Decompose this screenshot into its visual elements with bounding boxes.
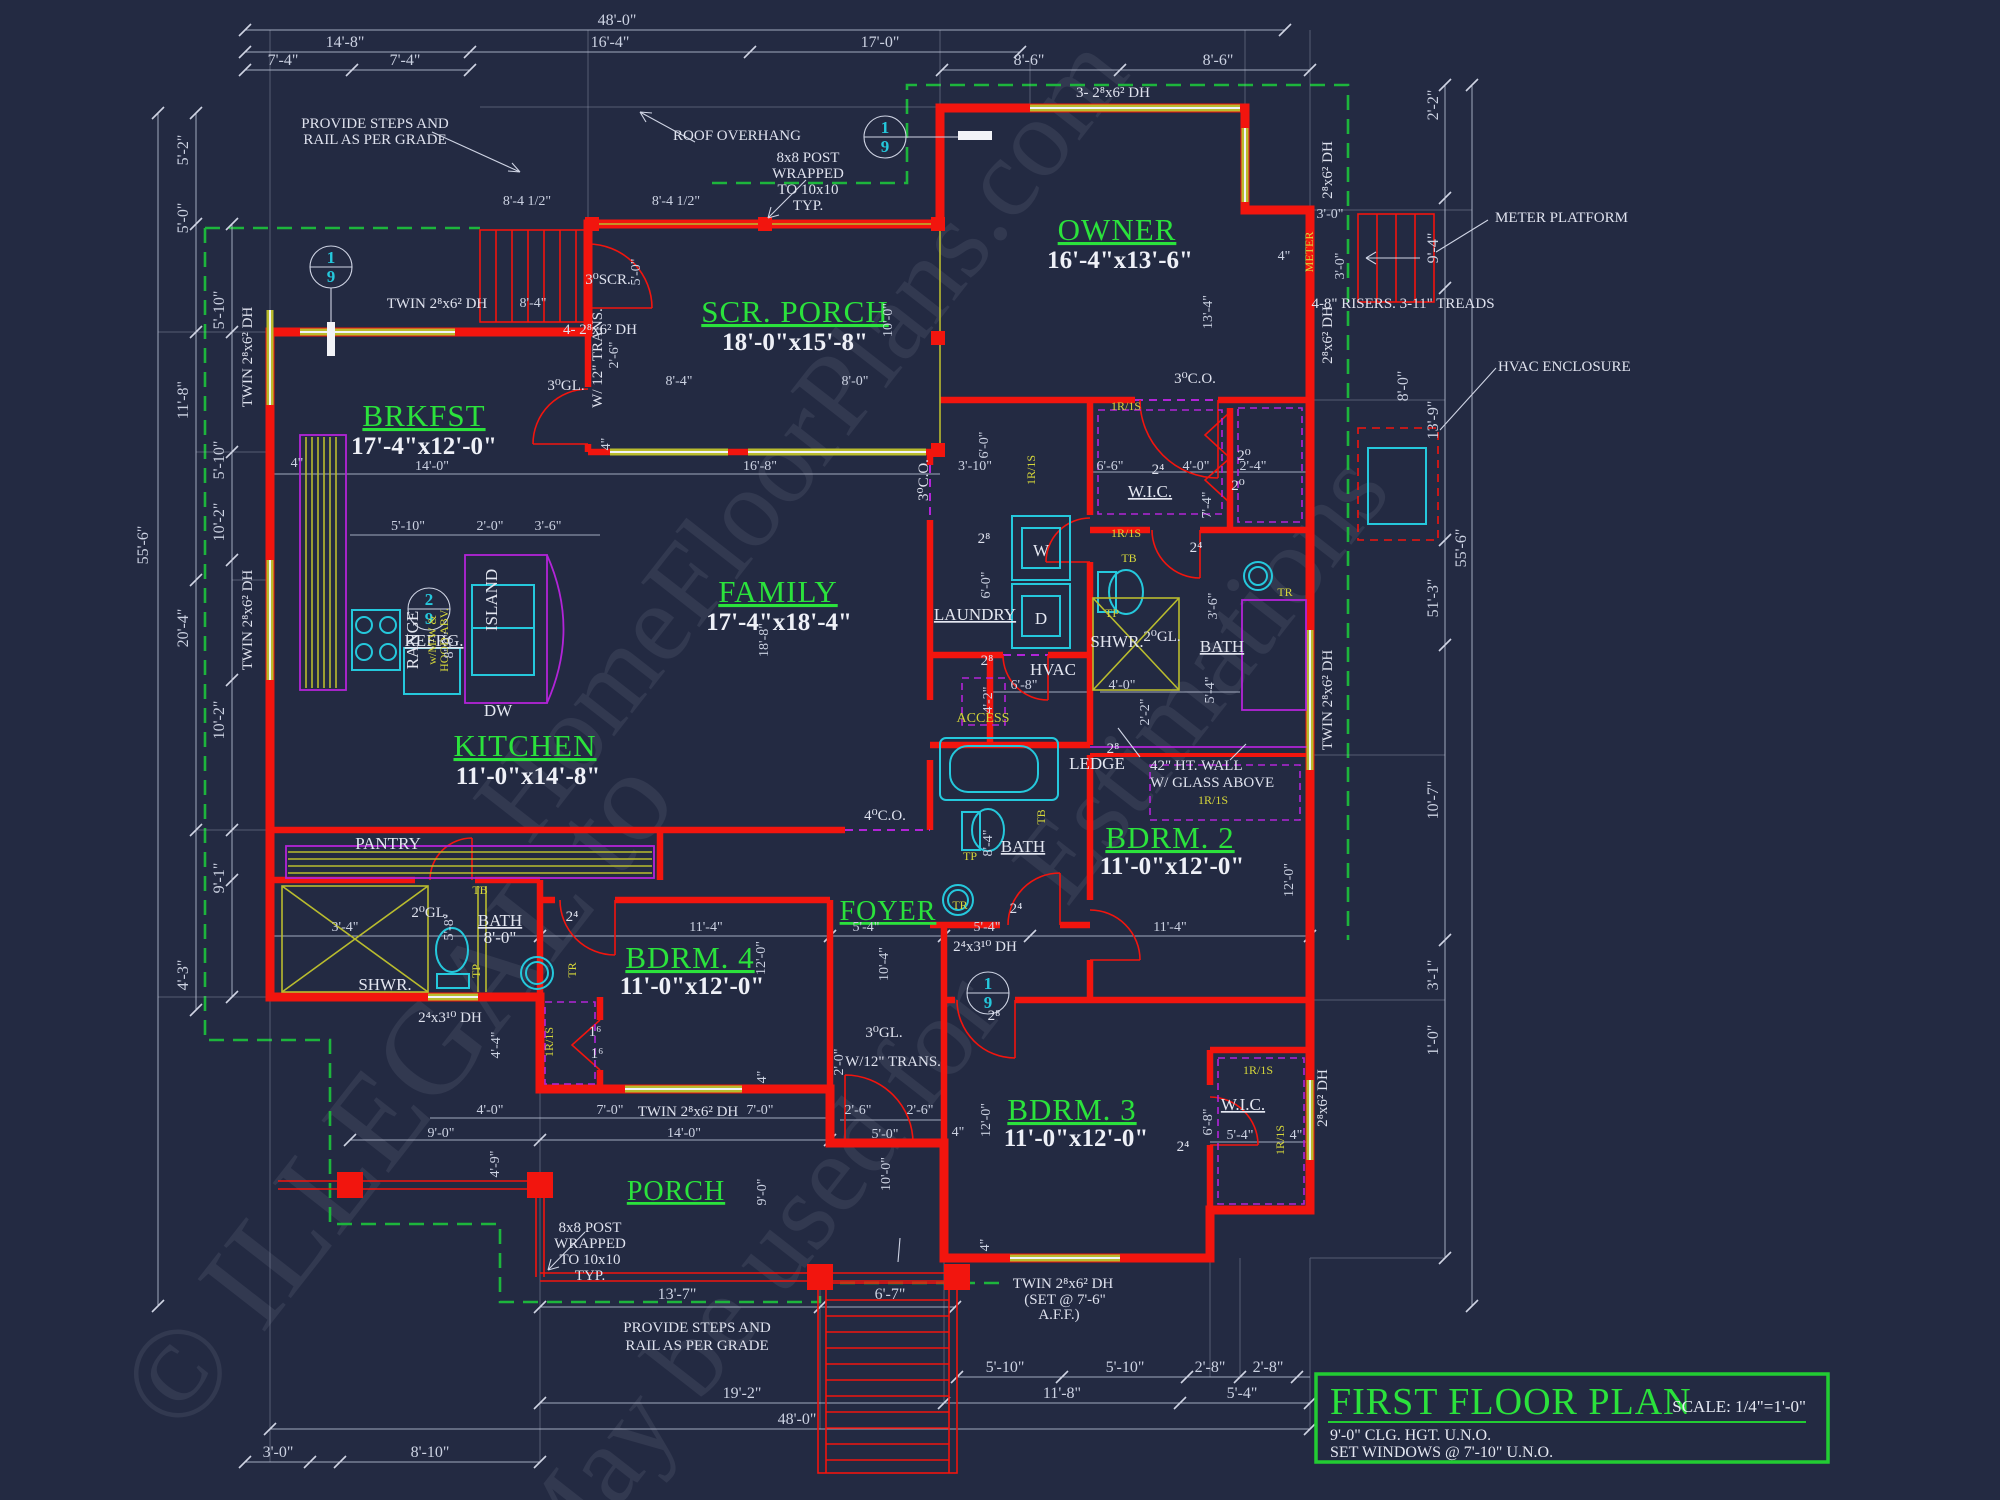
note-hvac-enclosure: HVAC ENCLOSURE bbox=[1498, 359, 1631, 375]
window-label: 2⁴x3¹⁰ DH bbox=[953, 939, 1017, 955]
dim: 1'-0" bbox=[1425, 1025, 1442, 1056]
dim: 14'-0" bbox=[667, 1126, 701, 1141]
dim: 2'-6" bbox=[907, 1103, 934, 1118]
tr-tag: TR bbox=[952, 898, 967, 912]
window-label: TWIN 2⁸x6² DH bbox=[387, 296, 488, 312]
dim: 5'-4" bbox=[1227, 1128, 1254, 1143]
dim: 8'-10" bbox=[411, 1444, 450, 1461]
room-size-bdrm4: 11'-0"x12'-0" bbox=[620, 973, 764, 1000]
dim: 8'-0" bbox=[1395, 371, 1412, 402]
dim: 13'-4" bbox=[1201, 295, 1216, 329]
note-meter-platform: METER PLATFORM bbox=[1495, 210, 1628, 226]
note-glass-wall: W/ GLASS ABOVE bbox=[1150, 775, 1274, 791]
dim: 10'-2" bbox=[211, 701, 228, 740]
dim: 5'-8" bbox=[442, 914, 457, 941]
label-bath: BATH bbox=[1200, 637, 1244, 656]
dim: 5'-10" bbox=[1106, 1359, 1145, 1376]
dim: 14'-0" bbox=[415, 459, 449, 474]
note-line: 8x8 POST bbox=[559, 1220, 622, 1236]
label-range: RANGE bbox=[403, 611, 422, 670]
dim: 12'-0" bbox=[754, 941, 769, 975]
door-size: 2⁴ bbox=[1177, 1139, 1190, 1155]
dim: 2'-2" bbox=[1138, 699, 1153, 726]
dim: 3'-10" bbox=[958, 459, 992, 474]
door-size: 2⁸ bbox=[1107, 741, 1120, 757]
dim: 2'-0" bbox=[477, 519, 504, 534]
dim: 3'-4" bbox=[332, 920, 359, 935]
dim: 8'-4 1/2" bbox=[503, 194, 551, 209]
dim: 4" bbox=[599, 438, 614, 451]
dim: 6'-6" bbox=[1097, 459, 1124, 474]
tp-tag: TP bbox=[469, 964, 483, 978]
door-size: 2⁸ bbox=[981, 653, 994, 669]
note-line: TO 10x10 bbox=[560, 1252, 621, 1268]
room-label-kitchen: KITCHEN bbox=[453, 728, 596, 763]
dim: 4" bbox=[978, 1239, 993, 1252]
dim: 3'-6" bbox=[1206, 593, 1221, 620]
dim: 5'-0" bbox=[872, 1127, 899, 1142]
dim: 9'-0" bbox=[755, 1179, 770, 1206]
dim: 5'-0" bbox=[629, 259, 644, 286]
dim: 13'-7" bbox=[658, 1286, 697, 1303]
window-label: 2⁸x6² DH bbox=[1320, 141, 1336, 199]
dim: 3'-0" bbox=[1317, 207, 1344, 222]
note-steps: PROVIDE STEPS AND bbox=[301, 116, 449, 132]
closet-tag: 1R/1S bbox=[1273, 1125, 1287, 1155]
dim: 4'-0" bbox=[1109, 678, 1136, 693]
dim: 8'-0" bbox=[442, 632, 457, 659]
dim: 10'-2" bbox=[211, 503, 228, 542]
dim: 16'-4" bbox=[591, 34, 630, 51]
closet-tag: 1R/1S bbox=[1111, 526, 1141, 540]
label-shwr: SHWR. bbox=[1090, 632, 1143, 651]
room-label-bdrm2: BDRM. 2 bbox=[1105, 820, 1234, 855]
window-label: TWIN 2⁸x6² DH bbox=[240, 307, 256, 408]
dim: 2'-8" bbox=[1195, 1359, 1226, 1376]
dim: 7'-4" bbox=[268, 52, 299, 69]
dim: 2'-2" bbox=[1425, 90, 1442, 121]
dim: 5'-4" bbox=[853, 920, 880, 935]
sheet-note: SET WINDOWS @ 7'-10" U.N.O. bbox=[1330, 1444, 1553, 1461]
door-label: 3⁰SCR. bbox=[585, 272, 631, 288]
closet-tag: 1R/1S bbox=[1024, 455, 1038, 485]
window-label: 3- 2⁸x6² DH bbox=[1076, 85, 1150, 101]
sheet-note: 9'-0" CLG. HGT. U.N.O. bbox=[1330, 1427, 1491, 1444]
dim: 5'-10" bbox=[211, 441, 228, 480]
room-size-scr-porch: 18'-0"x15'-8" bbox=[722, 329, 868, 356]
label-bath: BATH bbox=[1001, 837, 1045, 856]
dim: 17'-0" bbox=[861, 34, 900, 51]
dim: 5'-10" bbox=[211, 291, 228, 330]
dim: 10'-0" bbox=[879, 1157, 894, 1191]
dim: 10'-7" bbox=[1425, 781, 1442, 820]
door-label: 3⁰C.O. bbox=[1174, 371, 1216, 387]
dim: 5'-4" bbox=[974, 920, 1001, 935]
marker-number: 1 bbox=[984, 974, 993, 993]
room-label-bdrm4: BDRM. 4 bbox=[625, 940, 754, 975]
dim: 48'-0" bbox=[598, 12, 637, 29]
dim: 8'-4" bbox=[981, 830, 996, 857]
tr-tag: TR bbox=[565, 962, 579, 977]
room-label-bdrm3: BDRM. 3 bbox=[1007, 1092, 1136, 1127]
floor-plan-canvas: HomeFloorPlans.com © ILLEGAL to May be u… bbox=[0, 0, 2000, 1500]
dim: 3'-1" bbox=[1425, 960, 1442, 991]
dim: 3'-6" bbox=[535, 519, 562, 534]
door-size: 1⁶ bbox=[589, 1024, 602, 1040]
window-label: 2⁸x6² DH bbox=[1315, 1069, 1331, 1127]
room-label-owner: OWNER bbox=[1058, 212, 1177, 247]
dim: 11'-4" bbox=[689, 920, 722, 935]
note-line: WRAPPED bbox=[772, 166, 844, 182]
room-size-bdrm2: 11'-0"x12'-0" bbox=[1100, 853, 1244, 880]
label-dryer: D bbox=[1035, 609, 1047, 628]
label-hvac: HVAC bbox=[1030, 660, 1076, 679]
closet-tag: 1R/1S bbox=[1111, 399, 1141, 413]
label-washer: W bbox=[1033, 541, 1050, 560]
dim: 2'-4" bbox=[1240, 459, 1267, 474]
window-label-note: (SET @ 7'-6" bbox=[1024, 1292, 1106, 1308]
window-label: TWIN 2⁸x6² DH bbox=[1013, 1276, 1114, 1292]
room-label-brkfst: BRKFST bbox=[362, 398, 485, 433]
label-dw: DW bbox=[484, 701, 513, 720]
dim: 6'-0" bbox=[977, 432, 992, 459]
window-label: TWIN 2⁸x6² DH bbox=[240, 570, 256, 671]
note-line: TYP. bbox=[793, 198, 823, 214]
closet-tag: 1R/1S bbox=[1243, 1063, 1273, 1077]
window-label: TWIN 2⁸x6² DH bbox=[1320, 650, 1336, 751]
dim: 5'-0" bbox=[175, 203, 192, 234]
dim: 14'-8" bbox=[326, 34, 365, 51]
room-label-scr-porch: SCR. PORCH bbox=[701, 294, 888, 329]
dim: 11'-8" bbox=[175, 381, 192, 419]
tp-tag: TP bbox=[1105, 606, 1119, 620]
room-size-owner: 16'-4"x13'-6" bbox=[1047, 247, 1193, 274]
label-island: ISLAND bbox=[482, 569, 501, 631]
dim: 4" bbox=[1290, 1128, 1303, 1143]
dim: 9'-1" bbox=[211, 863, 228, 894]
tb-tag: TB bbox=[472, 883, 487, 897]
dim: 8'-0" bbox=[842, 374, 869, 389]
door-label: W/ 12" TRANS. bbox=[590, 308, 606, 408]
dim: 18'-8" bbox=[757, 623, 772, 657]
note-line: TYP. bbox=[575, 1268, 605, 1284]
label-pantry: PANTRY bbox=[355, 834, 421, 853]
door-size: 2⁰ bbox=[1231, 478, 1245, 494]
dim: 4'-4" bbox=[489, 1032, 504, 1059]
label-meter: METER bbox=[1302, 232, 1316, 273]
room-size-family: 17'-4"x18'-4" bbox=[706, 609, 852, 636]
dim: 4" bbox=[291, 456, 304, 471]
door-size: 2⁴ bbox=[1190, 540, 1203, 556]
label-bath-size: 8'-0" bbox=[484, 928, 517, 947]
room-size-brkfst: 17'-4"x12'-0" bbox=[351, 433, 497, 460]
label-laundry: LAUNDRY bbox=[934, 605, 1016, 624]
tr-tag: TR bbox=[1277, 585, 1292, 599]
note-steps: PROVIDE STEPS AND bbox=[623, 1320, 771, 1336]
dim: 6'-0" bbox=[979, 572, 994, 599]
dim: 6'-7" bbox=[875, 1286, 906, 1303]
dim: 10'-0" bbox=[881, 303, 896, 337]
dim: 7'-4" bbox=[1200, 492, 1215, 519]
sheet-title: FIRST FLOOR PLAN bbox=[1330, 1381, 1692, 1423]
label-wic: W.I.C. bbox=[1128, 482, 1172, 501]
dim: 5'-4" bbox=[1203, 677, 1218, 704]
dim: 3'-0" bbox=[263, 1444, 294, 1461]
closet-tag: 1R/1S bbox=[542, 1027, 556, 1057]
dim: 10'-4" bbox=[877, 947, 892, 981]
dim: 4" bbox=[755, 1071, 770, 1084]
marker-number: 9 bbox=[327, 267, 336, 286]
note-risers: 4-8" RISERS. 3-11" TREADS bbox=[1311, 296, 1494, 312]
dim: 7'-0" bbox=[597, 1103, 624, 1118]
dim: 9'-4" bbox=[1425, 233, 1442, 264]
note-line: WRAPPED bbox=[554, 1236, 626, 1252]
dim: 9'-0" bbox=[428, 1126, 455, 1141]
dim: 19'-2" bbox=[723, 1385, 762, 1402]
dim: 2'-0" bbox=[832, 1049, 847, 1076]
room-size-bdrm3: 11'-0"x12'-0" bbox=[1004, 1125, 1148, 1152]
tb-tag: TB bbox=[1121, 551, 1136, 565]
note-line: 8x8 POST bbox=[777, 150, 840, 166]
door-size: 2⁴ bbox=[1152, 462, 1165, 478]
door-label: 4⁰C.O. bbox=[864, 808, 906, 824]
dim: 4" bbox=[1278, 249, 1291, 264]
dim: 4'-9" bbox=[488, 1151, 503, 1178]
dim: 20'-4" bbox=[175, 609, 192, 648]
dim: 6'-8" bbox=[1201, 1109, 1216, 1136]
dim: 8'-6" bbox=[1203, 52, 1234, 69]
dim: 13'-9" bbox=[1425, 401, 1442, 440]
note-roof-overhang: ROOF OVERHANG bbox=[673, 128, 801, 144]
window-label: TWIN 2⁸x6² DH bbox=[638, 1104, 739, 1120]
note-steps: RAIL AS PER GRADE bbox=[303, 132, 446, 148]
marker-number: 1 bbox=[327, 248, 336, 267]
dim: 7'-0" bbox=[747, 1103, 774, 1118]
note-glass-wall: 42" HT. WALL bbox=[1150, 758, 1243, 774]
room-label-porch: PORCH bbox=[627, 1176, 725, 1207]
door-label: 3⁰C.O. bbox=[916, 459, 932, 501]
dim: 6'-8" bbox=[1011, 678, 1038, 693]
room-label-family: FAMILY bbox=[718, 574, 837, 609]
marker-number: 1 bbox=[881, 118, 890, 137]
dim: 8'-4" bbox=[520, 296, 547, 311]
door-size: 2⁸ bbox=[978, 531, 991, 547]
door-size: 2⁴ bbox=[566, 909, 579, 925]
dim: 16'-8" bbox=[743, 459, 777, 474]
door-size: 1⁶ bbox=[591, 1046, 604, 1062]
dim: 51'-3" bbox=[1425, 579, 1442, 618]
door-size: 2⁸ bbox=[988, 1008, 1001, 1024]
tp-tag: TP bbox=[963, 849, 977, 863]
door-label: 3⁰GL. bbox=[865, 1025, 902, 1041]
dim: 4'-3" bbox=[175, 960, 192, 991]
label-shwr: SHWR. bbox=[358, 975, 411, 994]
window-label: 2⁴x3¹⁰ DH bbox=[418, 1010, 482, 1026]
dim: 5'-10" bbox=[391, 519, 425, 534]
dim: 3'-0" bbox=[1333, 253, 1348, 280]
dim: 55'-6" bbox=[135, 526, 152, 565]
marker-number: 2 bbox=[425, 590, 434, 609]
dim: 11'-8" bbox=[1043, 1385, 1081, 1402]
dim: 2'-8" bbox=[1253, 1359, 1284, 1376]
dim: 7'-4" bbox=[390, 52, 421, 69]
door-label: 3⁰GL. bbox=[547, 378, 584, 394]
window-label-note: A.F.F.) bbox=[1038, 1307, 1079, 1323]
room-size-kitchen: 11'-0"x14'-8" bbox=[456, 763, 600, 790]
marker-number: 9 bbox=[881, 137, 890, 156]
dim: 5'-4" bbox=[1227, 1385, 1258, 1402]
dim: 8'-6" bbox=[1014, 52, 1045, 69]
dim: 2'-6" bbox=[845, 1103, 872, 1118]
dim: 8'-4 1/2" bbox=[652, 194, 700, 209]
closet-tag: 1R/1S bbox=[1198, 793, 1228, 807]
dim: 5'-10" bbox=[986, 1359, 1025, 1376]
note-line: TO 10x10 bbox=[778, 182, 839, 198]
door-label: W/12" TRANS. bbox=[845, 1054, 941, 1070]
dim: 4'-2" bbox=[981, 687, 996, 714]
dim: 8'-4" bbox=[666, 374, 693, 389]
door-label: 2⁰GL. bbox=[1143, 629, 1180, 645]
dim: 4'-0" bbox=[1183, 459, 1210, 474]
dim: 4" bbox=[952, 1125, 965, 1140]
window-label: 2⁸x6² DH bbox=[1320, 306, 1336, 364]
dim: 12'-0" bbox=[1282, 863, 1297, 897]
tb-tag: TB bbox=[1034, 809, 1048, 824]
dim: 4'-0" bbox=[477, 1103, 504, 1118]
dim: 5'-2" bbox=[175, 135, 192, 166]
dim: 11'-4" bbox=[1153, 920, 1186, 935]
note-steps: RAIL AS PER GRADE bbox=[625, 1338, 768, 1354]
dim: 2'-6" bbox=[607, 342, 622, 369]
sheet-scale: SCALE: 1/4"=1'-0" bbox=[1672, 1397, 1806, 1416]
dim: 12'-0" bbox=[979, 1103, 994, 1137]
label-wic: W.I.C. bbox=[1221, 1095, 1265, 1114]
dim: 48'-0" bbox=[778, 1411, 817, 1428]
dim: 55'-6" bbox=[1453, 529, 1470, 568]
door-size: 2⁴ bbox=[1010, 901, 1023, 917]
